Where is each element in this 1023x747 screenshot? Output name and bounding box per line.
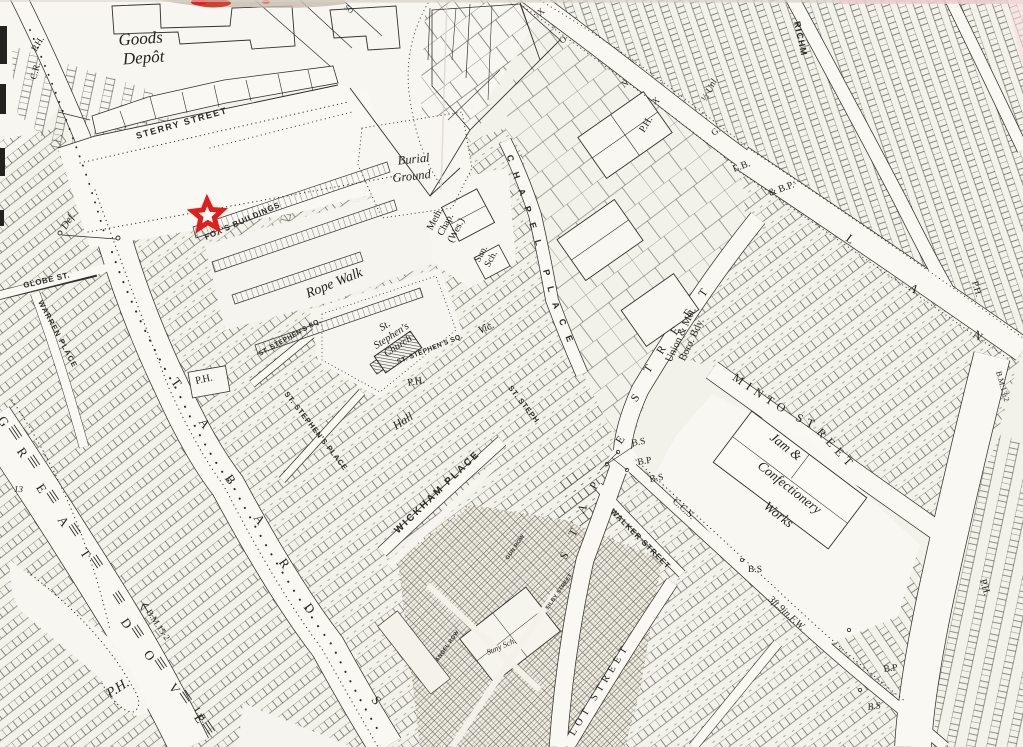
- svg-text:B.P: B.P: [883, 663, 898, 675]
- svg-text:13: 13: [14, 484, 24, 494]
- svg-text:B.S: B.S: [867, 701, 881, 713]
- svg-text:B.S: B.S: [748, 565, 762, 575]
- svg-text:Depôt: Depôt: [121, 46, 166, 68]
